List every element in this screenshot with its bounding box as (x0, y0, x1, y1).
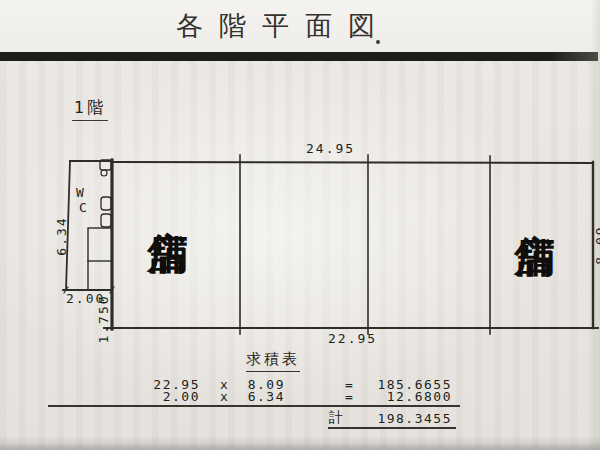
wc-label: W C (76, 185, 87, 215)
dim-bottom: 22.95 (328, 331, 377, 346)
wc-label-line2: C (76, 200, 87, 215)
scan-edge-shade-right (590, 0, 600, 450)
dim-top: 24.95 (306, 141, 355, 156)
scan-edge-shade-bottom (0, 436, 600, 450)
scanned-floorplan-page: 各階平面図 1階 (0, 0, 600, 450)
wc-label-line1: W (76, 185, 87, 200)
shop-label-left: 店舗 (146, 197, 190, 203)
dim-left-lower: 1.750 (96, 294, 111, 343)
area-row2-factor1: 2.00 (140, 389, 200, 404)
floorplan-lines (0, 0, 600, 450)
total-rule (328, 427, 456, 429)
area-row2-equals-sign: = (345, 389, 354, 404)
table-rule (48, 405, 460, 407)
dim-left: 6.34 (54, 216, 69, 255)
area-row2-result: 12.6800 (368, 389, 452, 404)
area-table-title: 求積表 (246, 350, 300, 372)
total-label: 計 (329, 409, 343, 429)
area-row2-multiply-sign: x (220, 389, 229, 404)
total-value: 198.3455 (368, 411, 452, 426)
shop-label-right: 店舗 (513, 200, 557, 206)
area-row2-factor2: 6.34 (235, 389, 285, 404)
